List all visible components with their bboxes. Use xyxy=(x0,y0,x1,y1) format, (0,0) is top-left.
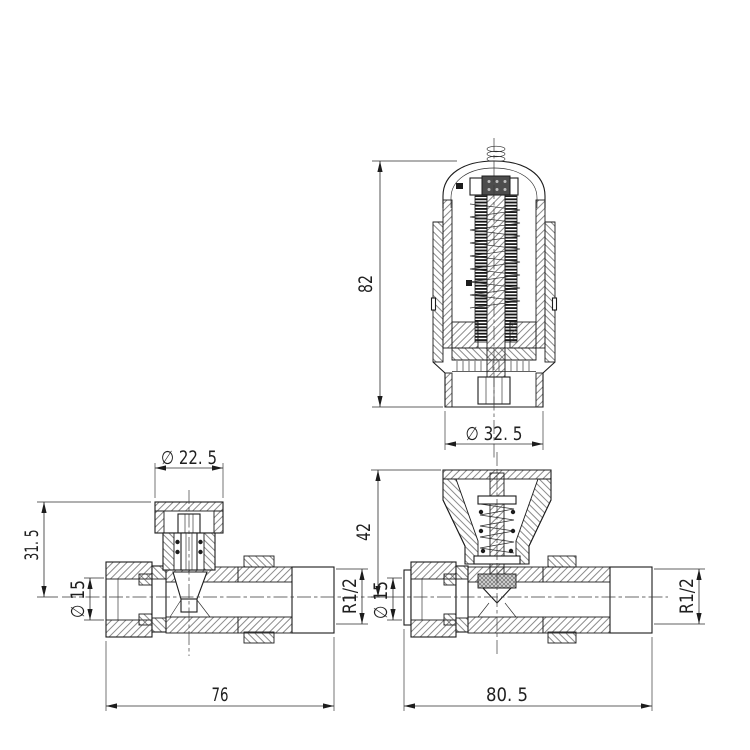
view-straight-valve xyxy=(62,490,380,656)
head-bellows-right xyxy=(505,196,517,342)
dim-label-straight-length: 76 xyxy=(212,685,229,706)
dim-straight-inlet-diameter: ∅ 15 xyxy=(68,578,104,620)
valve-technical-drawing: 82 ∅ 32. 5 xyxy=(0,0,750,750)
trv-union xyxy=(543,556,610,643)
straight-valve-union xyxy=(238,556,292,643)
view-thermostatic-head xyxy=(432,138,557,460)
head-outer-shell-left xyxy=(433,222,443,362)
trv-male-thread xyxy=(610,567,652,633)
dim-trv-inlet-diameter: ∅ 15 xyxy=(371,578,402,620)
dim-label-trv-length: 80. 5 xyxy=(486,685,528,706)
dim-label-straight-thread: R1/2 xyxy=(340,578,361,614)
straight-valve-compression-nut xyxy=(106,562,152,637)
dim-straight-length: 76 xyxy=(106,637,334,711)
head-inner-wall-left xyxy=(443,200,452,348)
dim-label-straight-inlet: ∅ 15 xyxy=(68,580,89,618)
trv-inlet-stub xyxy=(404,570,411,625)
head-outer-shell-right xyxy=(545,222,555,362)
dim-label-straight-height: 31. 5 xyxy=(22,530,43,561)
dim-label-trv-thread: R1/2 xyxy=(677,578,698,614)
head-inner-wall-right xyxy=(536,200,545,348)
dim-straight-thread: R1/2 xyxy=(336,569,368,624)
dim-label-trv-inlet: ∅ 15 xyxy=(371,581,392,619)
dim-label-straight-cap-diameter: ∅ 22. 5 xyxy=(161,448,217,469)
technical-drawing-canvas: 82 ∅ 32. 5 xyxy=(0,0,750,750)
dim-label-trv-height: 42 xyxy=(354,523,375,541)
straight-valve-plug xyxy=(170,572,210,617)
dim-trv-thread: R1/2 xyxy=(654,569,705,624)
head-adjuster-block xyxy=(482,176,510,195)
dim-label-head-diameter: ∅ 32. 5 xyxy=(466,424,523,445)
straight-valve-male-thread xyxy=(292,567,334,633)
dim-label-head-height: 82 xyxy=(356,275,377,293)
dim-trv-length: 80. 5 xyxy=(404,629,652,711)
trv-compression-nut xyxy=(411,562,456,637)
view-trv-body xyxy=(390,452,668,656)
head-top-spring xyxy=(487,146,505,162)
